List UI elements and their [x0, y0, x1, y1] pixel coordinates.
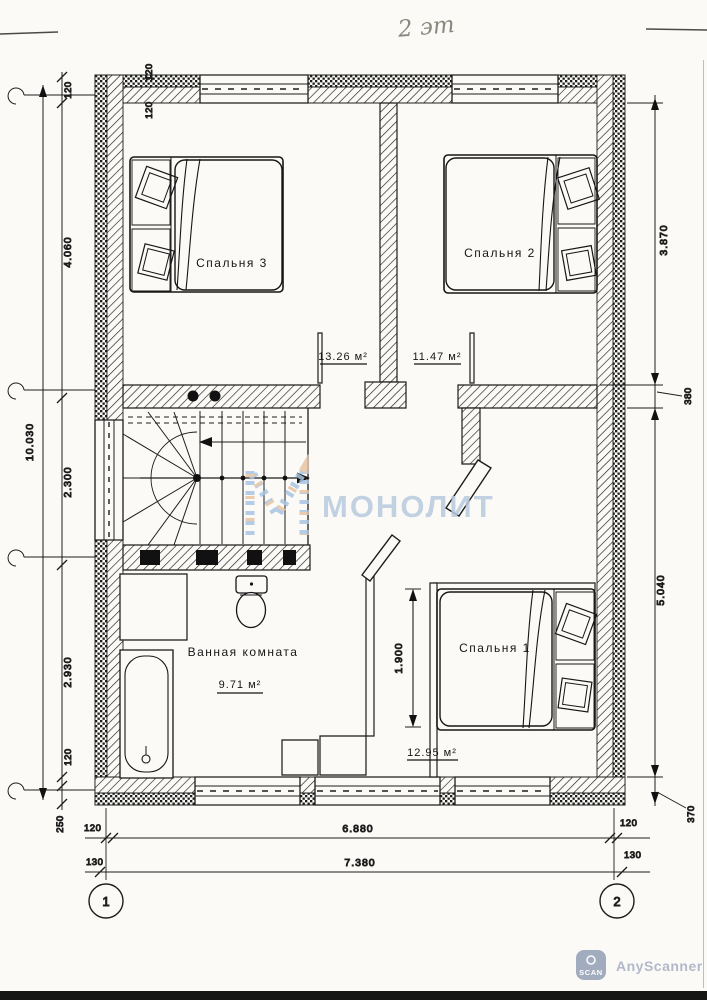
dim-120: 120: [144, 101, 155, 118]
bathroom-label: Ванная комната: [188, 645, 299, 659]
bathroom-cabinet: [120, 574, 187, 640]
monolit-logo-m-accent-icon: [250, 470, 304, 535]
dim-1900: 1.900: [393, 642, 405, 673]
dim-380: 380: [683, 387, 694, 404]
bathtub: [120, 650, 173, 778]
dim-2930: 2.930: [62, 656, 74, 687]
dim-left-overall: 10.030: [24, 423, 36, 461]
window-left-stair: [95, 420, 123, 540]
bottom-dimension-chains: 120 6.880 120 130 7.380 130 1 2: [84, 808, 650, 918]
dim-370: 370: [686, 805, 697, 822]
wall-middle-right: [458, 385, 597, 408]
window-bottom-bathroom: [195, 777, 300, 805]
bedroom2-label: Спальня 2: [464, 246, 536, 260]
window-bottom-bedroom1: [455, 777, 550, 805]
wall-bathroom-east: [366, 571, 374, 736]
window-top-right: [452, 75, 558, 103]
anyscanner-label: AnyScanner: [616, 958, 703, 974]
bed-bedroom2: [444, 155, 599, 293]
monolit-logo-m-icon: [250, 470, 304, 535]
window-top-left: [200, 75, 308, 103]
bathroom-unit: [282, 740, 318, 775]
axis-marker-1: 1: [89, 884, 123, 918]
door-leaf-bathroom: [362, 535, 400, 581]
staircase: [123, 408, 310, 545]
axis-1-number: 1: [102, 894, 109, 909]
dimension-bedroom1-hall: 1.900: [393, 589, 421, 727]
dim-6880: 6.880: [342, 823, 373, 835]
bedroom2-area: 11.47 м²: [413, 351, 462, 363]
scanned-floor-plan-page: 2 эт: [0, 0, 707, 1000]
dim-120: 120: [144, 63, 155, 80]
anyscanner-badge: SCAN AnyScanner: [576, 950, 703, 980]
scan-bottom-bar: [0, 991, 707, 1000]
dim-120: 120: [63, 81, 74, 98]
wall-bedroom2-3-partition: [380, 103, 397, 382]
bedroom1-area: 12.95 м²: [407, 747, 457, 759]
toilet: [236, 576, 267, 628]
axis-hooks: [8, 88, 95, 799]
floor-plan-drawing: 2 эт: [0, 0, 707, 1000]
door-leaf-bedroom2: [470, 333, 474, 383]
dim-5040: 5.040: [655, 574, 667, 605]
scan-icon-text: SCAN: [579, 968, 603, 977]
wall-middle-left: [123, 385, 320, 408]
dim-120: 120: [84, 823, 101, 834]
dim-130: 130: [86, 857, 103, 868]
bedroom1-label: Спальня 1: [459, 641, 531, 655]
bedroom3-label: Спальня 3: [196, 256, 268, 270]
bed-bedroom3: [130, 157, 283, 292]
axis-marker-2: 2: [600, 884, 634, 918]
dim-130: 130: [624, 850, 641, 861]
wall-hall-stub: [462, 408, 480, 464]
dim-120: 120: [63, 748, 74, 765]
monolit-watermark: МОНОЛИТ: [250, 470, 495, 535]
bathroom-area: 9.71 м²: [219, 679, 262, 691]
dim-7380: 7.380: [344, 857, 375, 869]
bathroom-fixtures: [120, 574, 366, 778]
dim-3870: 3.870: [658, 224, 670, 255]
monolit-watermark-text: МОНОЛИТ: [322, 489, 495, 524]
handwritten-floor-note: 2 эт: [396, 12, 456, 43]
dim-120: 120: [620, 818, 637, 829]
bed-bedroom1: [437, 589, 597, 730]
dim-4060: 4.060: [62, 236, 74, 267]
bedroom3-area: 13.26 м²: [318, 351, 368, 363]
bathroom-unit: [320, 736, 366, 775]
axis-2-number: 2: [613, 894, 620, 909]
window-bottom-hall: [315, 777, 440, 805]
dim-250: 250: [55, 815, 66, 832]
dim-2300: 2.300: [62, 466, 74, 497]
